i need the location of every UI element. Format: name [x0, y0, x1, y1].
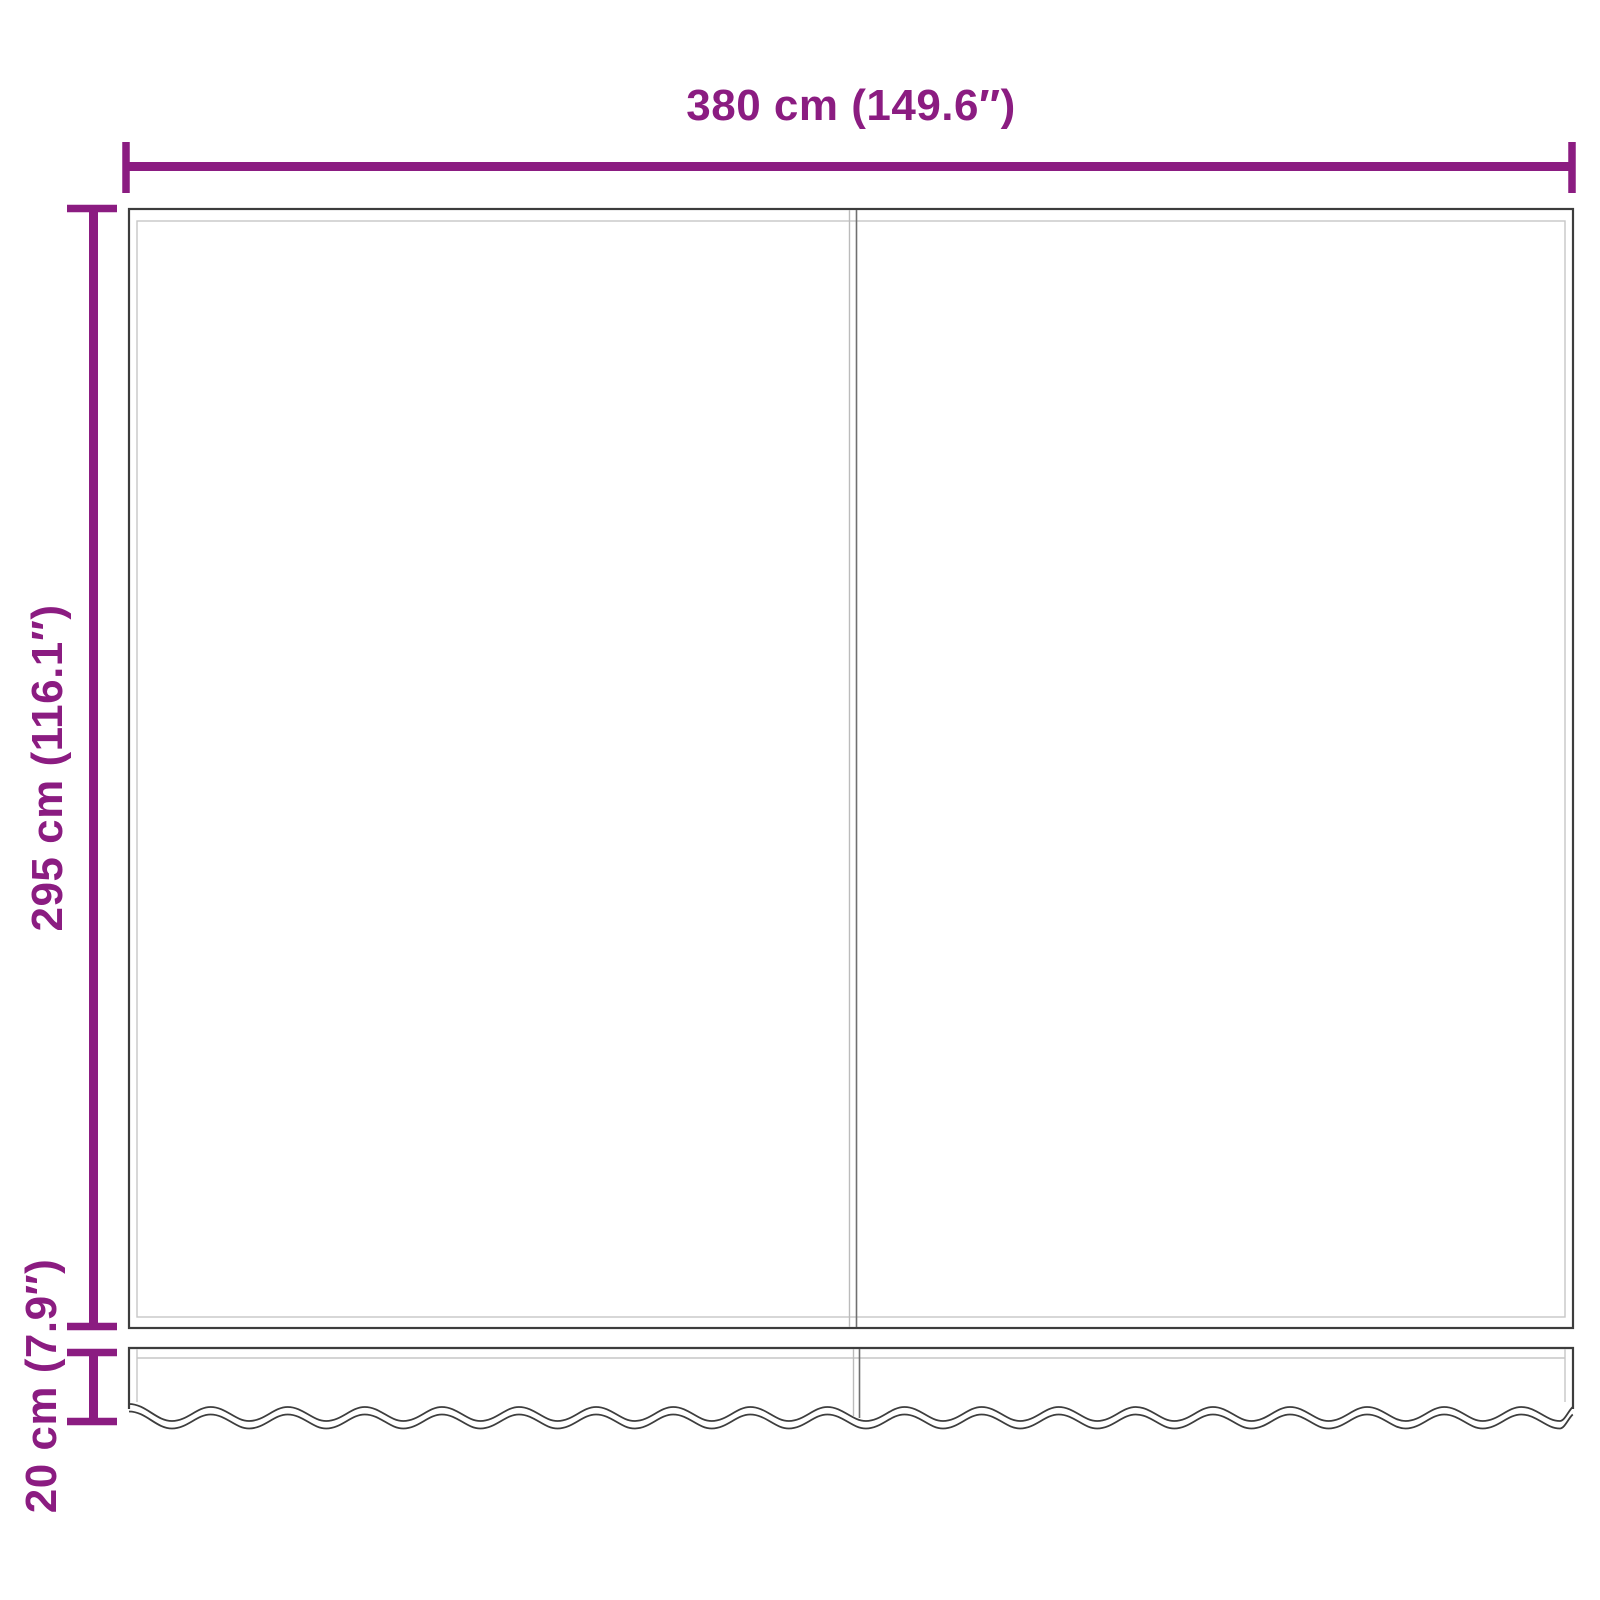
seam-dark-group [857, 210, 860, 1418]
valance-wave-edge-top [129, 1404, 1573, 1421]
valance-strip-outline [129, 1348, 1573, 1409]
fabric-outline-group [129, 209, 1573, 1429]
height-dimension-label: 295 cm (116.1″) [26, 604, 70, 931]
dimension-ticks-group [67, 142, 1572, 1422]
seam-light-group [850, 210, 854, 1416]
width-dimension-label: 380 cm (149.6″) [686, 84, 1015, 128]
hem-stitch-group [137, 221, 1565, 1402]
awning-fabric-dimension-diagram: 380 cm (149.6″) 295 cm (116.1″) 20 cm (7… [0, 0, 1600, 1600]
main-fabric-panel [129, 209, 1573, 1328]
diagram-canvas [0, 0, 1600, 1600]
main-panel-hem-line [137, 221, 1565, 1317]
dimension-lines-group [67, 142, 1575, 1423]
valance-dimension-label: 20 cm (7.9″) [20, 1259, 64, 1514]
valance-hem-line [137, 1349, 1565, 1402]
